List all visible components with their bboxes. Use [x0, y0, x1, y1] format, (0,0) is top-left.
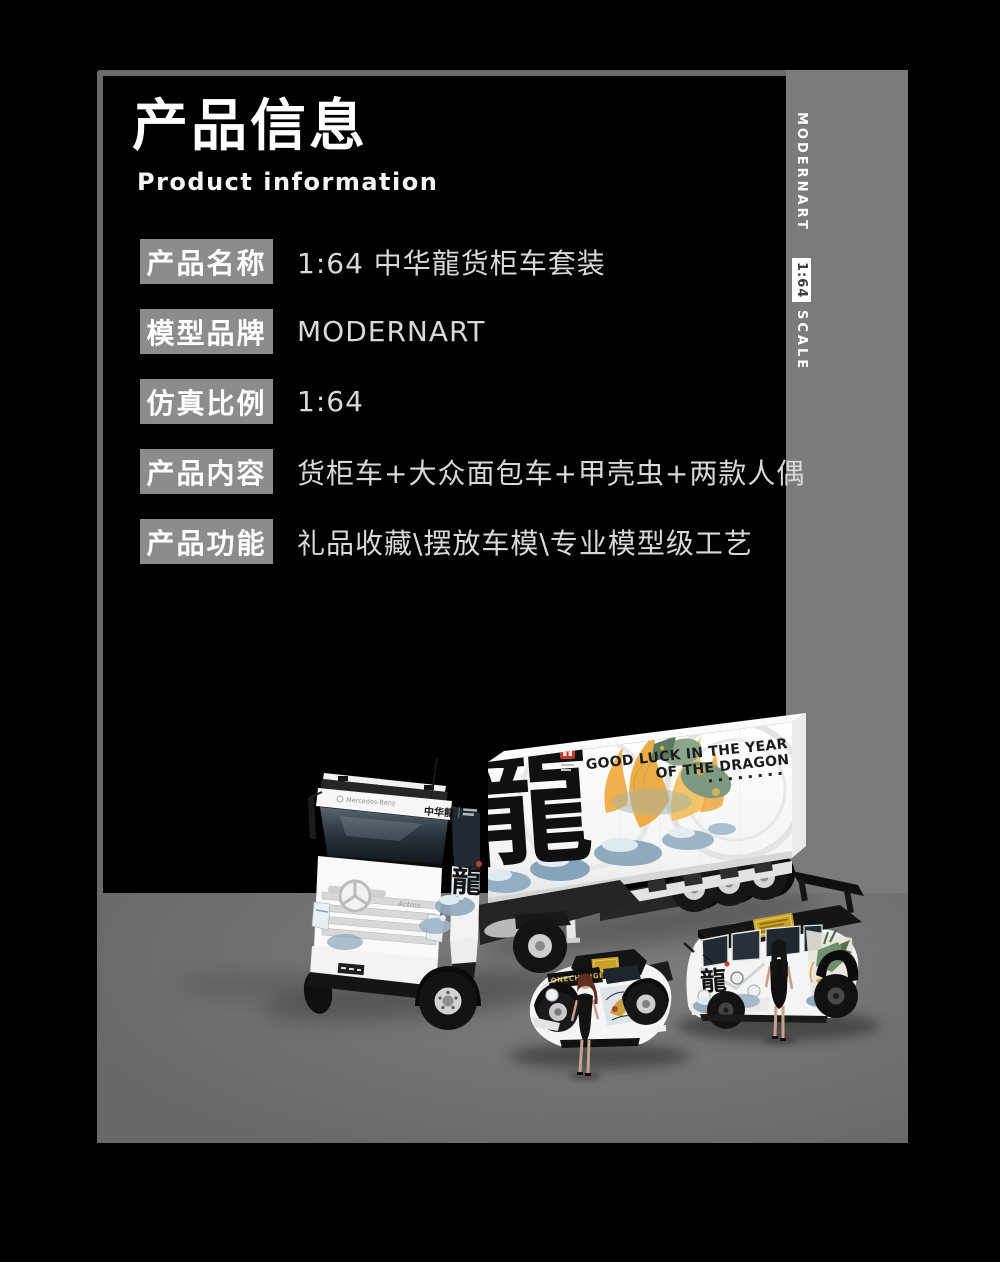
product-info-page: 产品信息 Product information MODERNART 1:64 …: [0, 0, 1000, 1262]
product-photo: 龍 GOOD LUCK IN THE YEAR OF THE DRAGON: [0, 0, 1000, 1262]
cab-art-calligraphy: 龍: [451, 864, 483, 901]
